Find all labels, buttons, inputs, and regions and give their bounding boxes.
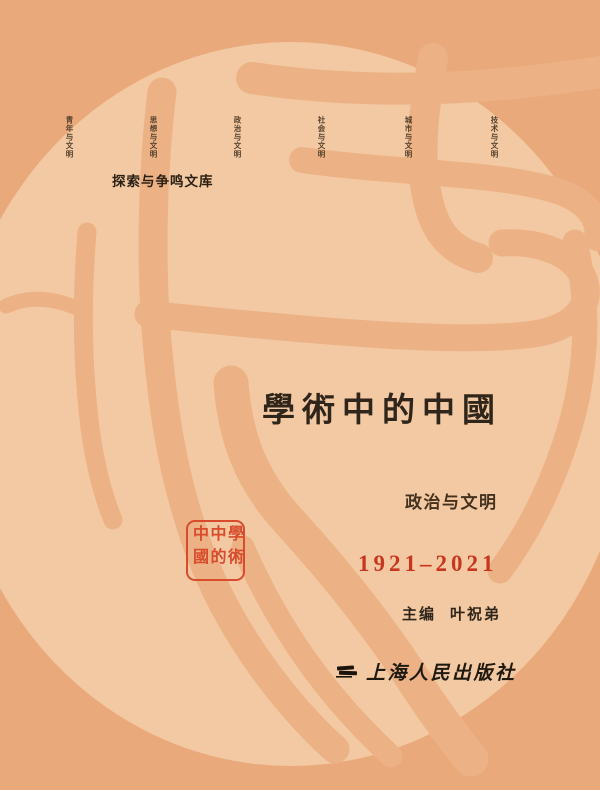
subtitle: 政治与文明 [405,488,498,513]
publisher-name: 上海人民出版社 [366,658,517,685]
category-label-technology: 技术与文明 [489,116,500,159]
main-title: 學術中的中國 [262,383,502,431]
category-label-politics: 政治与文明 [232,116,243,159]
years-range: 1921–2021 [358,551,498,577]
category-label-youth: 青年与文明 [64,116,75,159]
seal-column-left: 中國 [190,525,206,576]
stacked-books-icon [336,665,357,678]
book-cover: 青年与文明 思想与文明 政治与文明 社会与文明 城市与文明 技术与文明 探索与争… [0,0,600,790]
seal-stamp: 學術 中的 中國 [186,520,245,581]
seal-column-right: 學術 [225,525,241,576]
category-label-society: 社会与文明 [316,116,327,159]
editor-line: 主编 叶祝弟 [402,603,501,624]
series-title: 探索与争鸣文库 [112,170,214,190]
editor-label: 主编 [402,603,436,624]
seal-column-middle: 中的 [208,525,224,576]
editor-name: 叶祝弟 [450,603,501,624]
category-label-city: 城市与文明 [403,116,414,159]
publisher-line: 上海人民出版社 [336,658,517,685]
category-label-thought: 思想与文明 [148,116,159,159]
